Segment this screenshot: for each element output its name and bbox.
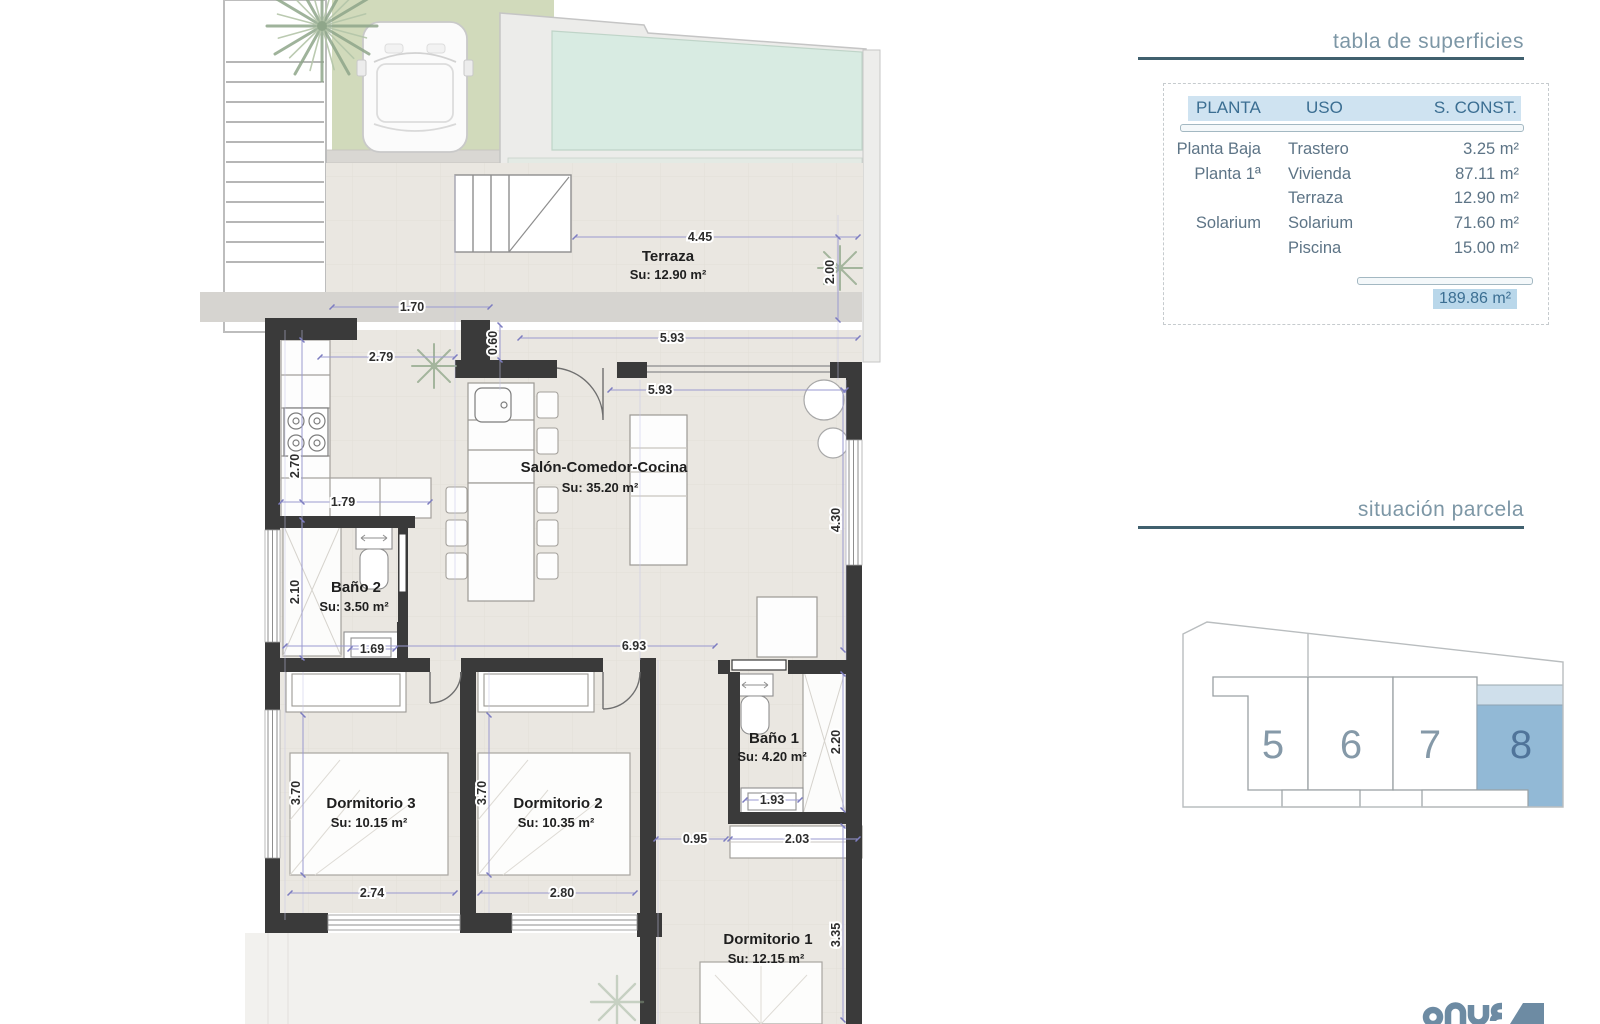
svg-text:2.70: 2.70	[288, 454, 302, 478]
total-surface-value: 189.86 m²	[1433, 289, 1517, 309]
wardrobe-dorm3	[286, 668, 406, 712]
plot-8-number: 8	[1510, 723, 1532, 767]
svg-text:1.79: 1.79	[331, 495, 355, 509]
table-row: Terraza 12.90 m²	[1163, 187, 1523, 212]
plant-pot	[804, 380, 844, 420]
terrace-walkway	[200, 292, 862, 322]
plot-7-number: 7	[1419, 723, 1441, 767]
svg-text:Su: 12.90 m²: Su: 12.90 m²	[630, 267, 707, 282]
svg-text:1.70: 1.70	[400, 300, 424, 314]
svg-text:4.45: 4.45	[688, 230, 712, 244]
table-row: Planta 1ª Vivienda 87.11 m²	[1163, 163, 1523, 188]
parcel-rule	[1138, 526, 1524, 529]
col-sconst: S. CONST.	[1434, 98, 1517, 118]
surfaces-title: tabla de superficies	[1333, 30, 1524, 54]
room-label-bano2: Baño 2	[331, 579, 381, 596]
svg-text:2.03: 2.03	[785, 832, 809, 846]
partner-logo	[1422, 995, 1544, 1024]
svg-text:Su: 4.20 m²: Su: 4.20 m²	[737, 749, 807, 764]
svg-text:2.74: 2.74	[360, 886, 384, 900]
surfaces-rule	[1138, 57, 1524, 60]
col-uso: USO	[1306, 98, 1343, 118]
floor-plan-drawing: 4.45 1.70 5.93 5.93 2.79 1.79 1.69 6.93 …	[0, 0, 905, 1024]
car-icon	[357, 22, 473, 152]
svg-text:Su: 3.50 m²: Su: 3.50 m²	[319, 599, 389, 614]
svg-text:2.79: 2.79	[369, 350, 393, 364]
parcel-title: situación parcela	[1358, 498, 1524, 522]
room-label-terraza: Terraza	[642, 248, 695, 265]
plot-5-shape	[1213, 677, 1308, 790]
lower-garden	[245, 933, 640, 1024]
col-planta: PLANTA	[1196, 98, 1261, 118]
svg-text:Su: 12.15 m²: Su: 12.15 m²	[728, 951, 805, 966]
bed-dorm3	[290, 753, 448, 875]
parcel-diagram: 5 6 7 8	[1160, 600, 1570, 830]
svg-text:5.93: 5.93	[660, 331, 684, 345]
boundary-right	[863, 50, 880, 362]
svg-text:4.30: 4.30	[829, 508, 843, 532]
svg-text:2.80: 2.80	[550, 886, 574, 900]
svg-text:6.93: 6.93	[622, 639, 646, 653]
svg-text:Su: 10.15 m²: Su: 10.15 m²	[331, 815, 408, 830]
plot-notch	[1282, 790, 1360, 807]
interior-stairs	[455, 175, 571, 252]
terrace-floor	[326, 163, 863, 292]
room-label-dorm1: Dormitorio 1	[723, 931, 812, 948]
svg-text:2.00: 2.00	[823, 260, 837, 284]
bed-dorm1	[700, 962, 822, 1024]
svg-text:0.95: 0.95	[683, 832, 707, 846]
svg-text:2.10: 2.10	[288, 580, 302, 604]
surfaces-table-rows: Planta Baja Trastero 3.25 m² Planta 1ª V…	[1163, 138, 1523, 261]
exterior-stairs	[224, 0, 326, 332]
svg-text:Su: 10.35 m²: Su: 10.35 m²	[518, 815, 595, 830]
plot-notch	[1422, 790, 1528, 807]
toilet-bano1	[737, 674, 773, 734]
table-row: Piscina 15.00 m²	[1163, 237, 1523, 262]
svg-text:Su: 35.20 m²: Su: 35.20 m²	[562, 480, 639, 495]
bed-dorm2	[478, 753, 630, 875]
pool	[552, 31, 862, 150]
room-label-dorm2: Dormitorio 2	[513, 795, 602, 812]
plot-5-number: 5	[1262, 723, 1284, 767]
floorplan-page: 4.45 1.70 5.93 5.93 2.79 1.79 1.69 6.93 …	[0, 0, 1600, 1024]
plot-8-band	[1477, 685, 1563, 705]
tree-kitchen	[412, 344, 456, 388]
svg-text:1.69: 1.69	[360, 642, 384, 656]
plot-6-number: 6	[1340, 723, 1362, 767]
total-underline-bar	[1357, 277, 1533, 285]
header-underline-bar	[1180, 124, 1524, 132]
svg-text:1.93: 1.93	[760, 793, 784, 807]
svg-text:3.70: 3.70	[475, 781, 489, 805]
surfaces-table-header: PLANTA USO S. CONST.	[1188, 96, 1521, 121]
wardrobe-dorm2	[478, 668, 594, 712]
table-row: Solarium Solarium 71.60 m²	[1163, 212, 1523, 237]
svg-text:0.60: 0.60	[486, 331, 500, 355]
svg-text:2.20: 2.20	[829, 730, 843, 754]
room-label-dorm3: Dormitorio 3	[326, 795, 415, 812]
kitchen-island	[468, 383, 534, 601]
svg-text:3.35: 3.35	[829, 923, 843, 947]
room-label-salon: Salón-Comedor-Cocina	[521, 459, 688, 476]
svg-text:5.93: 5.93	[648, 383, 672, 397]
coffee-table	[757, 597, 817, 657]
svg-text:3.70: 3.70	[289, 781, 303, 805]
sofa	[630, 415, 687, 565]
stove-icon	[284, 408, 328, 456]
table-row: Planta Baja Trastero 3.25 m²	[1163, 138, 1523, 163]
room-label-bano1: Baño 1	[749, 730, 799, 747]
